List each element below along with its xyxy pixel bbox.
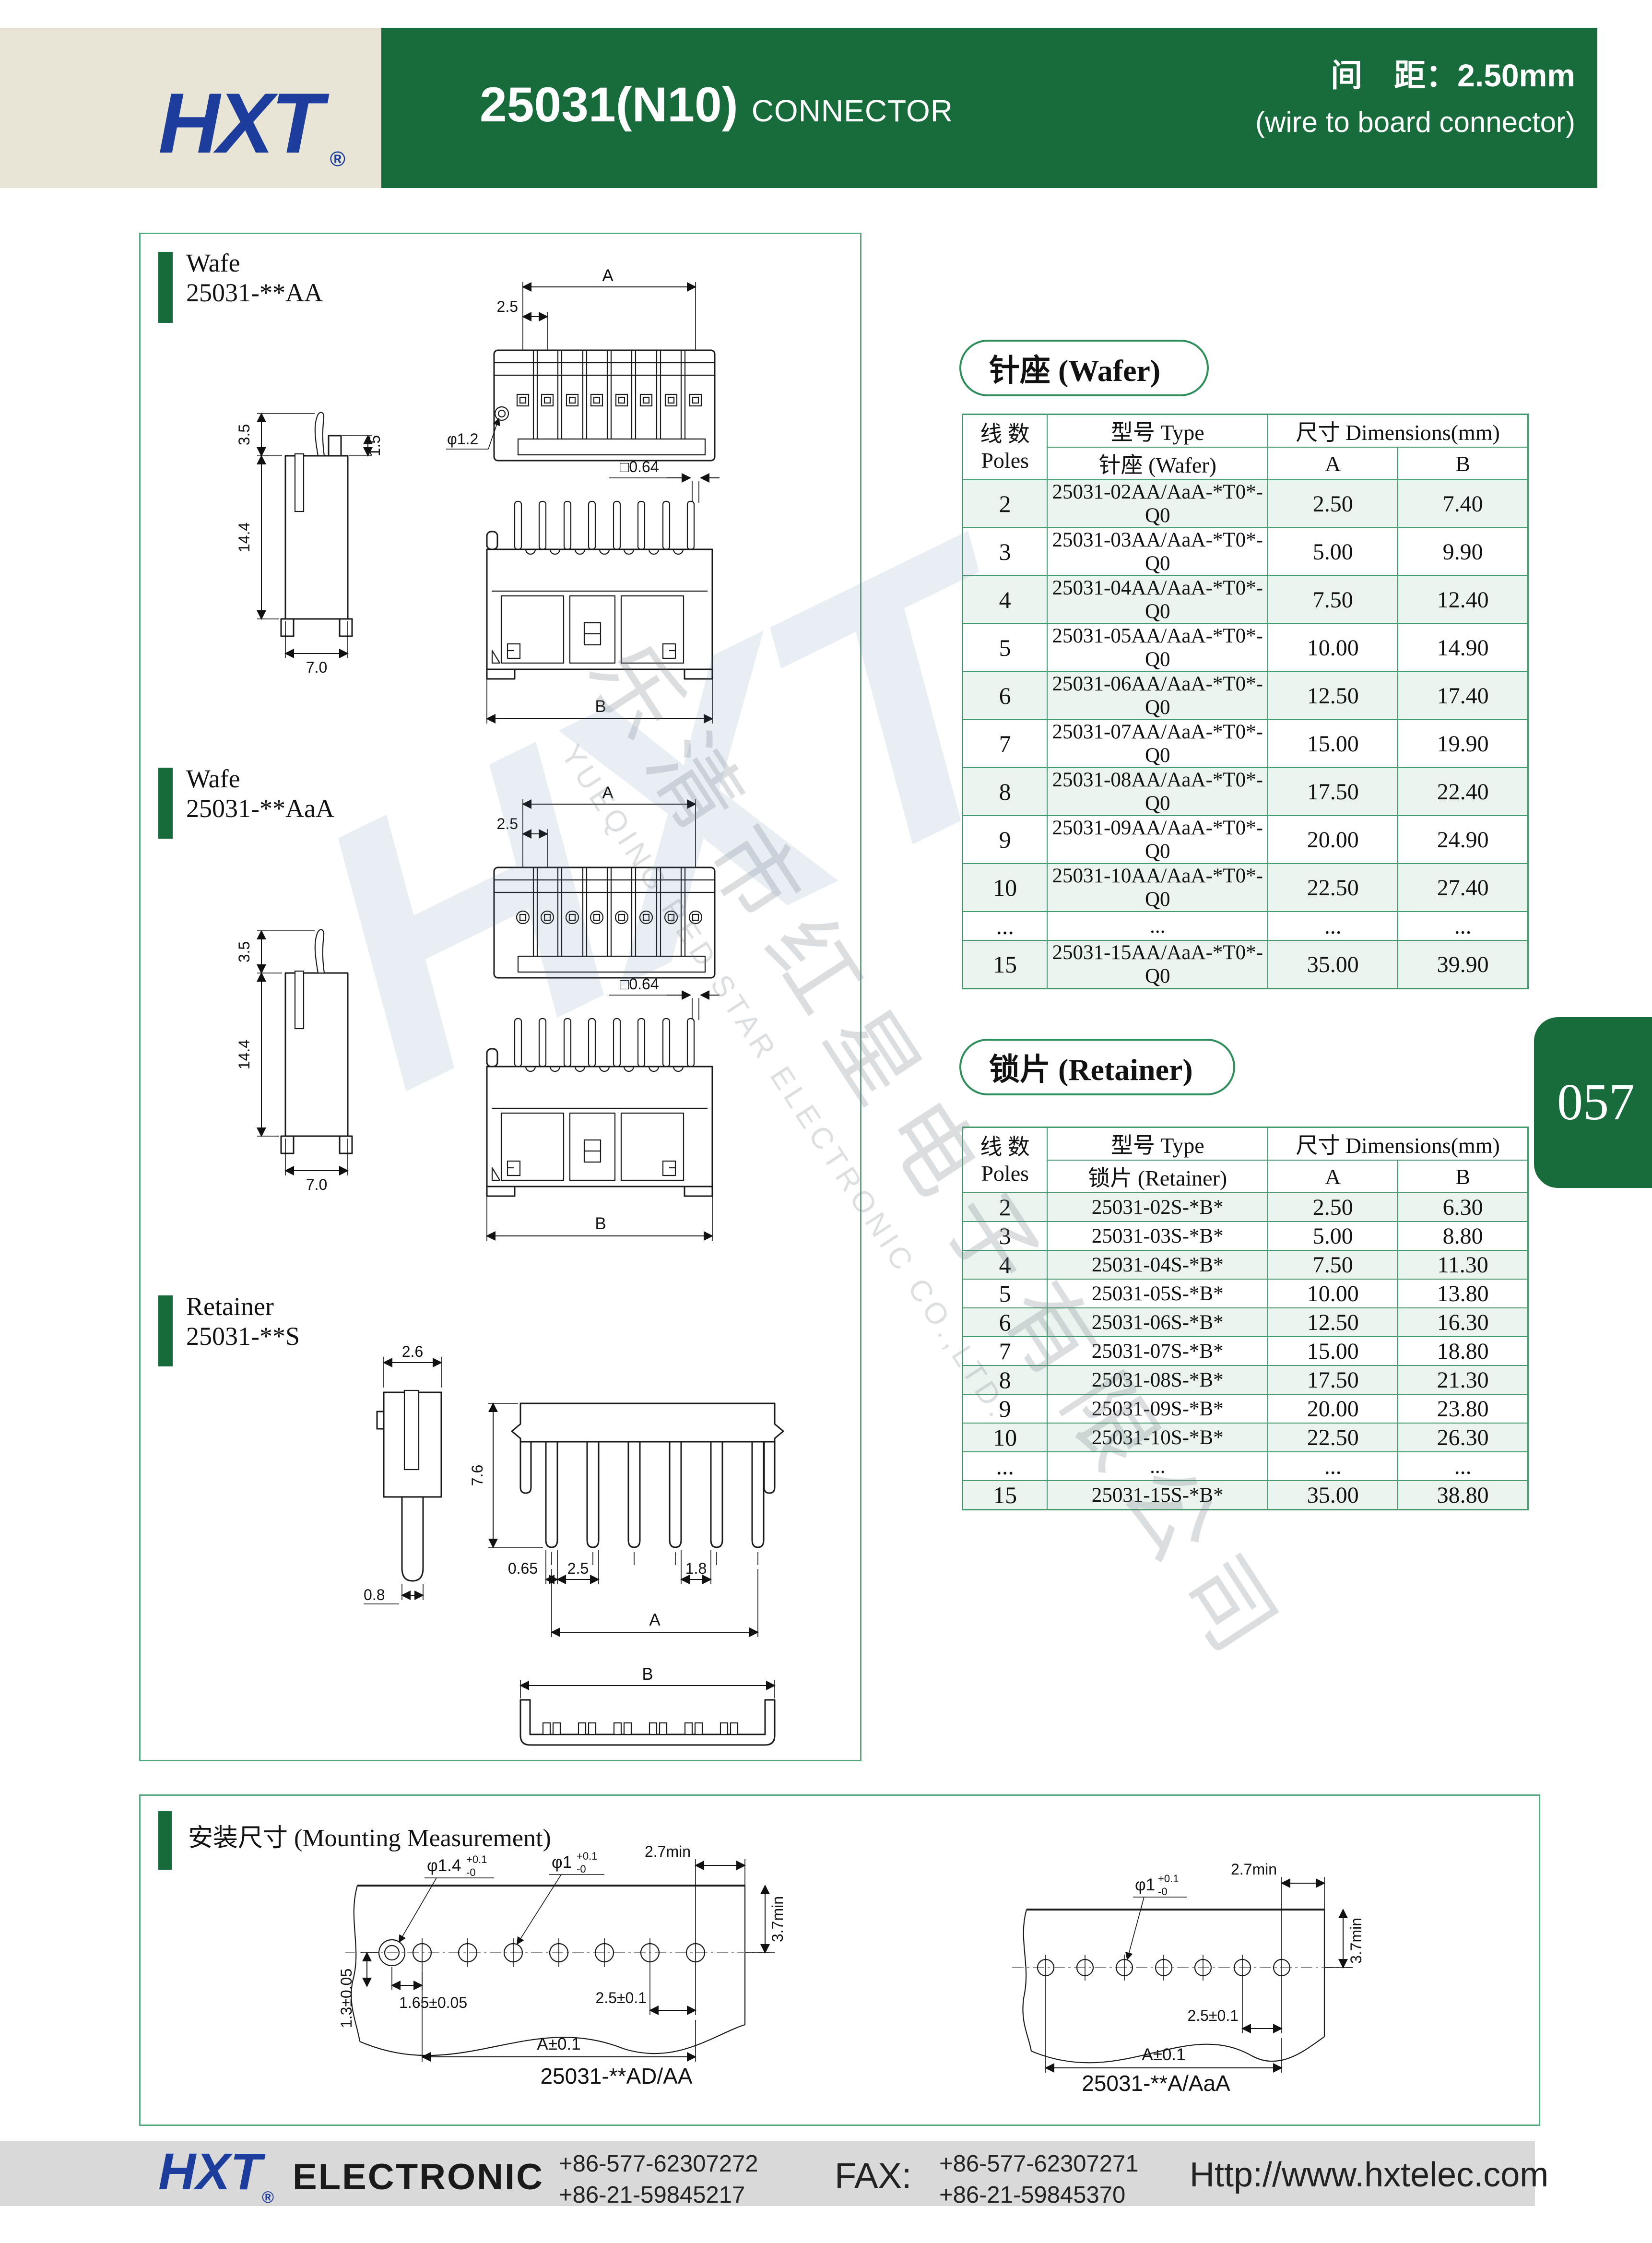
dim-2-7min: 2.7min: [645, 1843, 691, 1860]
part-category: CONNECTOR: [752, 93, 953, 129]
mounting-drawing-ad-aa: 2.7min 3.7min φ1.4 +0.1 -0 φ1 +0.1 -0 1.…: [259, 1823, 835, 2073]
wafer-aa-top-view-drawing: A 2.5 φ1.2: [446, 269, 724, 470]
tol-plus: +0.1: [577, 1850, 597, 1862]
part-number: 25031(N10): [480, 77, 738, 133]
col-a: A: [1268, 447, 1398, 480]
retainer-table-title-text: 锁片 (Retainer): [989, 1045, 1193, 1089]
section-bullet: [158, 1295, 173, 1366]
table-row: 725031-07AA/AaA-*T0*-Q015.0019.90: [963, 720, 1528, 768]
tol-minus: -0: [1158, 1886, 1168, 1898]
table-row: ............: [963, 1452, 1528, 1481]
retainer-table: 线 数 Poles 型号 Type 尺寸 Dimensions(mm) 锁片 (…: [962, 1127, 1529, 1510]
footer-company-name: ELECTRONIC: [293, 2156, 544, 2198]
section-bullet: [158, 252, 173, 323]
page-number-tab: 057: [1534, 1017, 1652, 1188]
table-row: 625031-06S-*B*12.5016.30: [963, 1308, 1528, 1337]
wafer-aaa-top-view-drawing: A 2.5: [446, 786, 724, 987]
dim-1-65: 1.65±0.05: [399, 1994, 467, 2011]
panel-label-line2: 25031-**AaA: [186, 794, 334, 824]
table-row: 825031-08S-*B*17.5021.30: [963, 1365, 1528, 1394]
page-number: 057: [1557, 1073, 1635, 1132]
dim-hole-big: φ1.4: [427, 1856, 461, 1875]
retainer-front-view-drawing: 7.6 0.65 2.5 1.8 A: [475, 1382, 796, 1665]
footer-phone-2: +86-21-59845217: [559, 2180, 758, 2211]
dim-A: A: [602, 783, 614, 802]
dim-offset: 0.65: [508, 1560, 538, 1577]
col-type-sub: 针座 (Wafer): [1047, 447, 1268, 480]
teeth: [546, 1442, 764, 1547]
dim-latch: 3.5: [236, 424, 253, 445]
retainer-table-title: 锁片 (Retainer): [959, 1039, 1235, 1095]
dim-pitch: 2.5: [567, 1560, 589, 1577]
col-b: B: [1398, 1160, 1528, 1193]
footer-phone-1: +86-577-62307272: [559, 2148, 758, 2180]
footer-fax-1: +86-577-62307271: [939, 2148, 1139, 2180]
table-row: 1525031-15AA/AaA-*T0*-Q035.0039.90: [963, 940, 1528, 989]
table-header-row: 线 数 Poles 型号 Type 尺寸 Dimensions(mm): [963, 1127, 1528, 1161]
dim-width: 7.0: [306, 659, 327, 676]
footer-fax-numbers: +86-577-62307271 +86-21-59845370: [939, 2148, 1139, 2210]
dim-hole-small: φ1: [552, 1853, 572, 1872]
dim-latch: 3.5: [236, 941, 253, 962]
mounting-left-caption: 25031-**AD/AA: [496, 2063, 736, 2089]
pitch-value: 间 距：2.50mm: [1255, 50, 1575, 96]
table-row: 325031-03AA/AaA-*T0*-Q05.009.90: [963, 528, 1528, 576]
table-row: 1025031-10S-*B*22.5026.30: [963, 1423, 1528, 1452]
col-a: A: [1268, 1160, 1398, 1193]
footer-phones: +86-577-62307272 +86-21-59845217: [559, 2148, 758, 2210]
col-type: 型号 Type: [1047, 1127, 1268, 1161]
footer-fax-label: FAX:: [835, 2155, 911, 2196]
wafer-table-title: 针座 (Wafer): [959, 340, 1209, 396]
table-row: 525031-05AA/AaA-*T0*-Q010.0014.90: [963, 624, 1528, 672]
pitch-subtitle: (wire to board connector): [1255, 106, 1575, 139]
brand-logo-text: HXT: [158, 75, 320, 171]
panel-label-line1: Wafe: [186, 249, 323, 278]
wafer-aa-side-view-drawing: 3.5 14.4 1.5 7.0: [225, 389, 389, 676]
dim-B: B: [642, 1665, 653, 1684]
table-row: 825031-08AA/AaA-*T0*-Q017.5022.40: [963, 768, 1528, 816]
panel-label-line1: Wafe: [186, 764, 334, 794]
dim-A: A: [602, 266, 614, 285]
col-poles: 线 数 Poles: [963, 415, 1048, 480]
registered-mark: ®: [330, 149, 345, 170]
dim-height: 14.4: [236, 522, 253, 552]
dim-pitch: 2.5: [497, 815, 518, 832]
wafer-table: 线 数 Poles 型号 Type 尺寸 Dimensions(mm) 针座 (…: [962, 414, 1529, 989]
table-row: 1525031-15S-*B*35.0038.80: [963, 1481, 1528, 1510]
panel-label-line2: 25031-**AA: [186, 278, 323, 308]
col-type-sub: 锁片 (Retainer): [1047, 1160, 1268, 1193]
dim-width: 7.0: [306, 1176, 327, 1193]
table-header-row: 线 数 Poles 型号 Type 尺寸 Dimensions(mm): [963, 415, 1528, 448]
page-title: 25031(N10) CONNECTOR: [480, 77, 953, 133]
table-row: ............: [963, 912, 1528, 940]
table-row: 425031-04S-*B*7.5011.30: [963, 1250, 1528, 1279]
dim-2-5: 2.5±0.1: [595, 1989, 647, 2006]
col-dimensions: 尺寸 Dimensions(mm): [1268, 415, 1528, 448]
bottom-contacts: [543, 1723, 738, 1734]
panel-label: Retainer 25031-**S: [186, 1292, 300, 1351]
panel-label: Wafe 25031-**AaA: [186, 764, 334, 823]
table-row: 1025031-10AA/AaA-*T0*-Q022.5027.40: [963, 864, 1528, 912]
table-row: 225031-02S-*B*2.506.30: [963, 1193, 1528, 1222]
pins: [515, 501, 694, 549]
table-row: 625031-06AA/AaA-*T0*-Q012.5017.40: [963, 672, 1528, 720]
dim-pin-square: □0.64: [620, 458, 659, 475]
table-header-row: 针座 (Wafer) A B: [963, 447, 1528, 480]
footer-logo: HXT®: [158, 2146, 274, 2206]
col-type: 型号 Type: [1047, 415, 1268, 448]
col-dimensions: 尺寸 Dimensions(mm): [1268, 1127, 1528, 1161]
dim-3-7min: 3.7min: [1347, 1918, 1365, 1964]
section-bullet: [158, 768, 173, 839]
dim-1-3: 1.3±0.05: [338, 1969, 355, 2028]
table-row: 925031-09S-*B*20.0023.80: [963, 1394, 1528, 1423]
pitch-info: 间 距：2.50mm (wire to board connector): [1255, 50, 1575, 139]
dim-B: B: [595, 1214, 606, 1233]
dim-2-5: 2.5±0.1: [1187, 2007, 1239, 2024]
wafer-aaa-front-view-drawing: □0.64 B: [446, 973, 724, 1266]
dim-top-width: 2.6: [402, 1343, 423, 1360]
table-row: 425031-04AA/AaA-*T0*-Q07.5012.40: [963, 576, 1528, 624]
hole-center-marks: [422, 1938, 696, 1967]
dim-hole: φ1.2: [447, 430, 478, 448]
dim-A: A±0.1: [537, 2035, 580, 2053]
dim-hole: φ1: [1135, 1875, 1155, 1894]
dim-3-7min: 3.7min: [769, 1896, 786, 1942]
col-b: B: [1398, 447, 1528, 480]
panel-label: Wafe 25031-**AA: [186, 249, 323, 308]
wafer-aa-front-view-drawing: □0.64 B: [446, 456, 724, 748]
footer-fax-2: +86-21-59845370: [939, 2180, 1139, 2211]
wafer-aaa-side-view-drawing: 3.5 14.4 7.0: [225, 906, 389, 1194]
registered-mark: ®: [262, 2188, 274, 2207]
mounting-right-caption: 25031-**A/AaA: [1036, 2070, 1276, 2096]
dim-height: 7.6: [469, 1465, 486, 1486]
table-header-row: 锁片 (Retainer) A B: [963, 1160, 1528, 1193]
tol-minus: -0: [577, 1863, 586, 1875]
table-row: 325031-03S-*B*5.008.80: [963, 1222, 1528, 1250]
retainer-side-view-drawing: 2.6 0.8: [350, 1339, 475, 1612]
dim-B: B: [595, 697, 606, 716]
panel-label-line1: Retainer: [186, 1292, 300, 1322]
tol-plus: +0.1: [1158, 1873, 1179, 1885]
table-row: 725031-07S-*B*15.0018.80: [963, 1337, 1528, 1365]
pins: [515, 1019, 694, 1067]
dim-A: A: [649, 1611, 661, 1629]
dim-2-7min: 2.7min: [1231, 1861, 1277, 1878]
wafer-table-title-text: 针座 (Wafer): [989, 346, 1160, 390]
section-bullet: [158, 1811, 172, 1870]
mounting-drawing-a-aaa: 2.7min 3.7min φ1 +0.1 -0 2.5±0.1 A±0.1: [964, 1838, 1396, 2077]
dim-pin: 1.5: [366, 435, 383, 456]
tol-plus: +0.1: [466, 1853, 487, 1865]
dim-tip-width: 0.8: [364, 1586, 385, 1603]
datasheet-page: HXT® 25031(N10) CONNECTOR 间 距：2.50mm (wi…: [0, 0, 1652, 2243]
table-row: 225031-02AA/AaA-*T0*-Q02.507.40: [963, 480, 1528, 528]
col-poles: 线 数 Poles: [963, 1127, 1048, 1193]
table-row: 925031-09AA/AaA-*T0*-Q020.0024.90: [963, 816, 1528, 864]
dim-pin-square: □0.64: [620, 975, 659, 993]
brand-logo: HXT®: [158, 81, 320, 166]
dim-gap: 1.8: [685, 1560, 707, 1577]
dim-height: 14.4: [236, 1040, 253, 1069]
tol-minus: -0: [466, 1866, 476, 1878]
table-row: 525031-05S-*B*10.0013.80: [963, 1279, 1528, 1308]
dim-A: A±0.1: [1142, 2045, 1185, 2064]
footer-website: Http://www.hxtelec.com: [1190, 2155, 1548, 2195]
retainer-bottom-view-drawing: B: [475, 1672, 796, 1758]
dim-pitch: 2.5: [497, 298, 518, 315]
panel-label-line2: 25031-**S: [186, 1322, 300, 1352]
header-logo-band: HXT®: [0, 28, 381, 188]
